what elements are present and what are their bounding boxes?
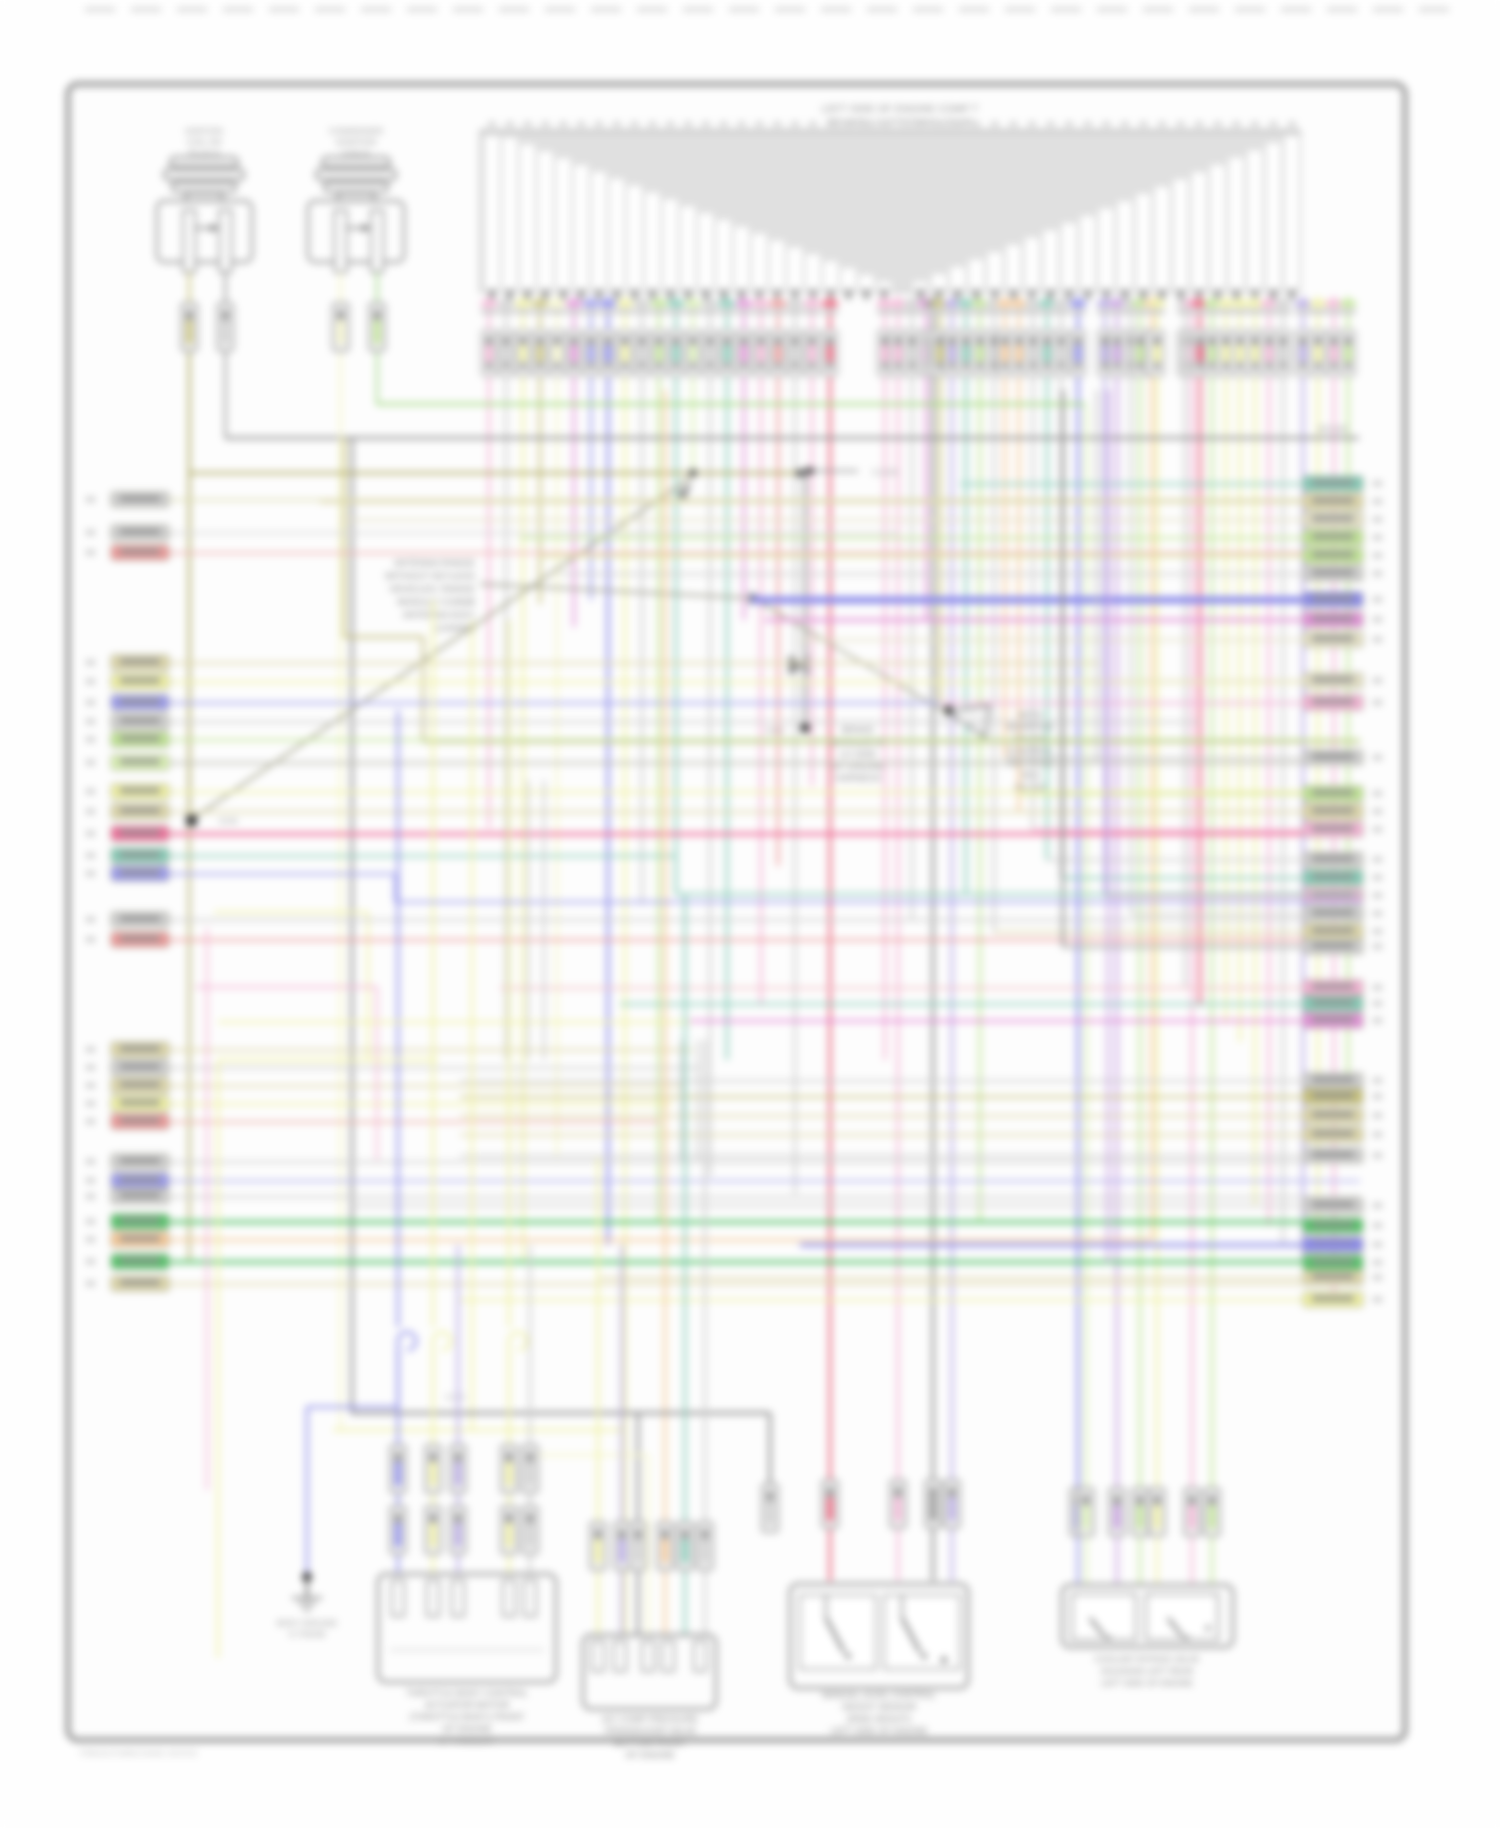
svg-text:BRAKE: BRAKE [842,725,874,736]
svg-text:S248: S248 [219,817,238,826]
svg-text:BODY GROUND: BODY GROUND [277,1619,338,1628]
svg-text:BROWN: BROWN [1318,425,1349,434]
svg-text:BOTTOM FRONT: BOTTOM FRONT [614,1738,686,1748]
svg-text:COIL ON: COIL ON [187,137,222,147]
svg-text:LEFT SIDE OF ENGINE: LEFT SIDE OF ENGINE [1101,1678,1193,1688]
svg-text:(RIDE HEIGHT): (RIDE HEIGHT) [847,1714,911,1724]
svg-text:(14A664): (14A664) [436,623,475,634]
svg-text:CONTROL: CONTROL [1007,746,1053,757]
svg-text:LH SIDE: LH SIDE [840,749,877,760]
svg-text:ANTENNA RANGE: ANTENNA RANGE [394,558,475,569]
svg-text:WITHOUT KEYLESS: WITHOUT KEYLESS [385,571,475,582]
svg-text:30-2: 30-2 [1020,770,1039,781]
svg-text:IGNITION: IGNITION [185,126,223,136]
svg-text:WITH: WITH [1018,710,1042,721]
svg-text:OF ENGINE: OF ENGINE [625,1750,675,1760]
svg-text:MANUAL LEVEL CONTROL: MANUAL LEVEL CONTROL [822,1690,936,1700]
svg-text:ACTUATOR MOTOR: ACTUATOR MOTOR [425,1700,510,1710]
svg-text:C-T AMOUNT: C-T AMOUNT [439,1736,495,1746]
svg-text:CLEAN: CLEAN [872,468,899,477]
svg-text:(IGNITION: (IGNITION [336,137,377,147]
svg-text:G400: G400 [766,726,784,735]
svg-text:FREEAUTOMECHANIC ADVICE: FREEAUTOMECHANIC ADVICE [80,1749,198,1758]
svg-text:MODULE C2383B: MODULE C2383B [397,597,475,608]
svg-text:G-T04/GB: G-T04/GB [289,1630,325,1639]
svg-text:THROTTLE BODY CONTROL: THROTTLE BODY CONTROL [406,1688,528,1698]
svg-text:A/C COMP PRESSURE: A/C COMP PRESSURE [602,1714,698,1724]
svg-text:C175: C175 [445,1393,465,1402]
svg-text:COOLANT BYPASS VALVE: COOLANT BYPASS VALVE [1094,1654,1200,1664]
svg-text:VEHICLES: RANGE: VEHICLES: RANGE [389,584,475,595]
svg-text:OF ENGINE: OF ENGINE [442,1724,492,1734]
svg-text:SOLENOID LEFT REAR: SOLENOID LEFT REAR [1101,1666,1194,1676]
svg-text:LEFT SIDE OF ENGINE: LEFT SIDE OF ENGINE [830,1726,927,1736]
svg-text:HEIGHT SENSOR: HEIGHT SENSOR [842,1702,917,1712]
svg-text:MODULE AT: MODULE AT [831,737,885,748]
svg-text:ADAPTIVE: ADAPTIVE [1007,722,1054,733]
svg-text:ANTENNA ASSY: ANTENNA ASSY [403,610,476,621]
svg-text:(THROTTLE BODY) FRONT: (THROTTLE BODY) FRONT [410,1712,525,1722]
svg-text:HARNESS: HARNESS [835,773,881,784]
svg-text:LEFT SIDE OF ENGINE COMP T: LEFT SIDE OF ENGINE COMP T [822,103,980,115]
svg-text:CONDENSER: CONDENSER [329,126,383,136]
svg-text:TRANSDUCER VALVE: TRANSDUCER VALVE [604,1726,697,1736]
